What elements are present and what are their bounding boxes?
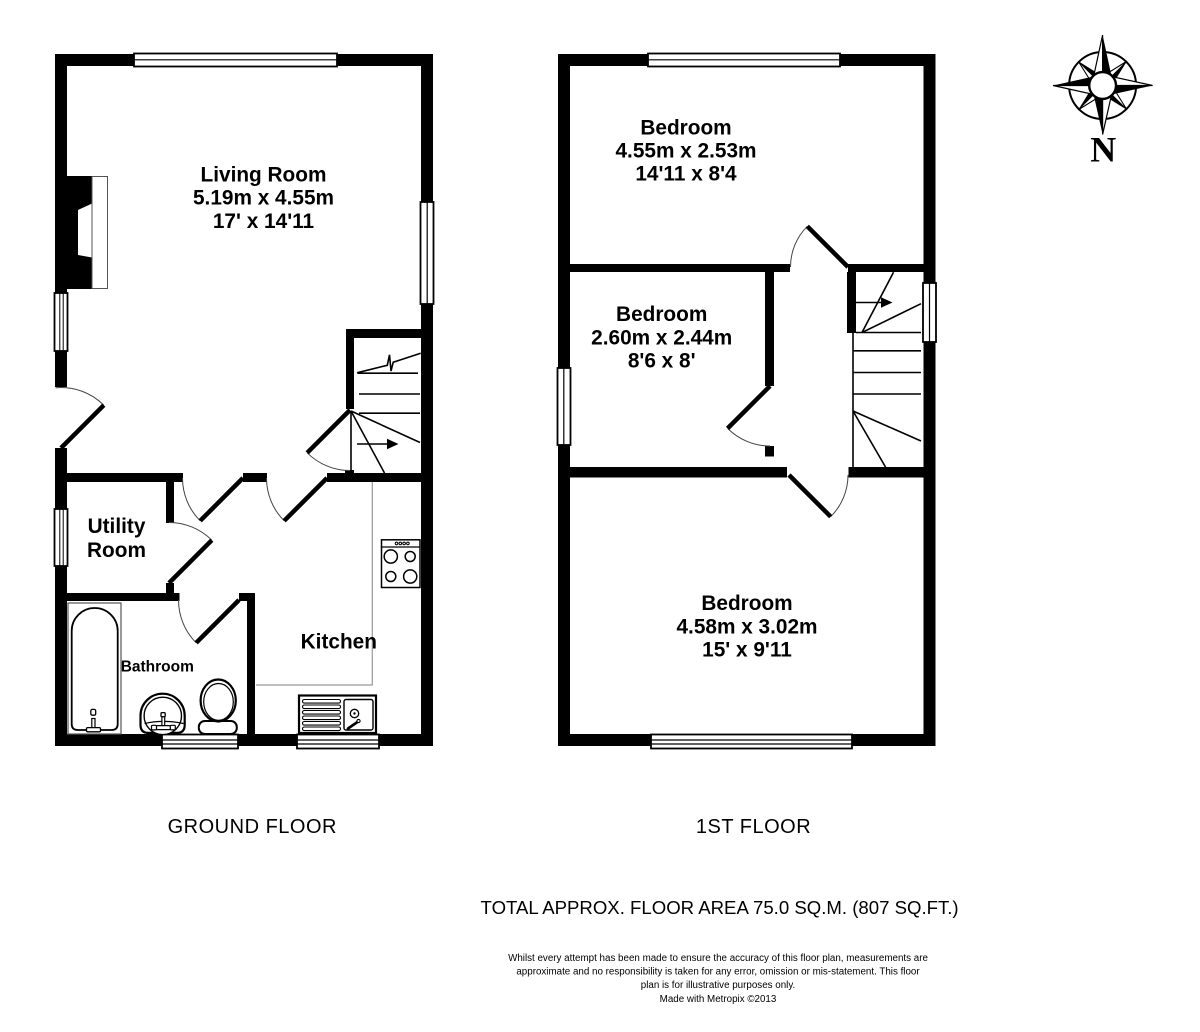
svg-text:5.19m x 4.55m: 5.19m x 4.55m — [193, 187, 334, 210]
svg-text:17' x 14'11: 17' x 14'11 — [213, 210, 314, 233]
svg-text:Bedroom: Bedroom — [640, 116, 731, 139]
svg-text:Whilst every attempt has been: Whilst every attempt has been made to en… — [508, 953, 928, 964]
svg-text:Made with Metropix ©2013: Made with Metropix ©2013 — [660, 994, 777, 1005]
svg-text:TOTAL APPROX. FLOOR AREA 75.0: TOTAL APPROX. FLOOR AREA 75.0 SQ.M. (807… — [481, 897, 959, 918]
svg-text:Kitchen: Kitchen — [301, 631, 377, 654]
svg-text:4.55m x 2.53m: 4.55m x 2.53m — [615, 139, 756, 162]
svg-text:Utility: Utility — [88, 515, 146, 538]
svg-text:2.60m x 2.44m: 2.60m x 2.44m — [591, 326, 732, 349]
svg-text:N: N — [1090, 130, 1116, 170]
svg-text:GROUND FLOOR: GROUND FLOOR — [168, 816, 337, 838]
svg-text:1ST FLOOR: 1ST FLOOR — [696, 816, 811, 838]
svg-text:14'11 x 8'4: 14'11 x 8'4 — [635, 162, 737, 185]
svg-text:4.58m x 3.02m: 4.58m x 3.02m — [676, 616, 817, 639]
svg-text:approximate and no responsibil: approximate and no responsibility is tak… — [516, 967, 920, 978]
svg-text:Room: Room — [87, 539, 146, 562]
svg-text:Bathroom: Bathroom — [121, 658, 194, 675]
svg-text:15' x 9'11: 15' x 9'11 — [702, 639, 792, 662]
svg-text:plan is for illustrative purpo: plan is for illustrative purposes only. — [641, 980, 795, 991]
svg-text:Bedroom: Bedroom — [701, 592, 792, 615]
svg-text:Bedroom: Bedroom — [616, 303, 707, 326]
svg-text:Living Room: Living Room — [201, 163, 327, 186]
svg-text:8'6 x 8': 8'6 x 8' — [628, 350, 696, 373]
